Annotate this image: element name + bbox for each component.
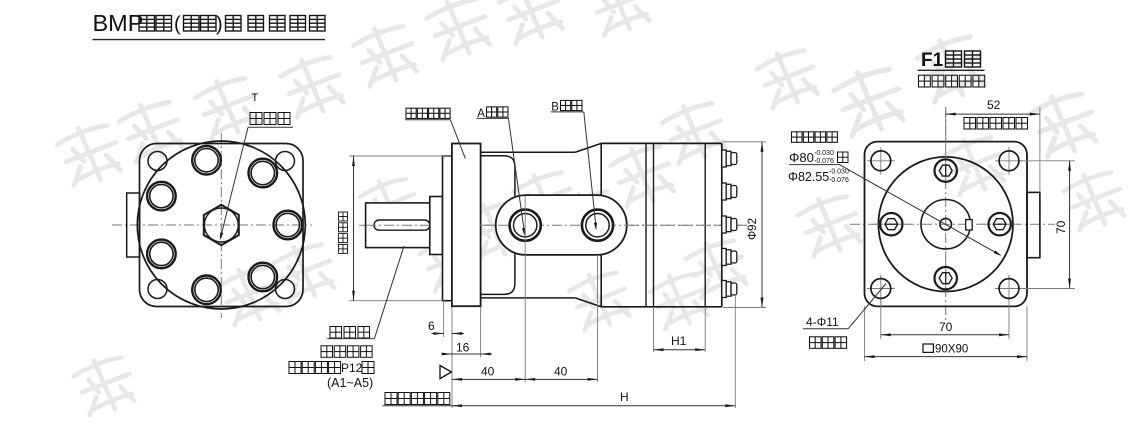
svg-text:H1: H1 <box>671 334 687 348</box>
svg-text:6: 6 <box>428 319 435 333</box>
svg-text:-0.076: -0.076 <box>829 177 849 184</box>
svg-text:4-Φ11: 4-Φ11 <box>806 315 839 329</box>
svg-text:P12: P12 <box>341 361 363 375</box>
svg-text:Φ92: Φ92 <box>747 218 759 240</box>
svg-text:-0.030: -0.030 <box>814 150 834 157</box>
svg-text:40: 40 <box>554 365 568 379</box>
svg-text:T: T <box>252 92 259 104</box>
svg-text:52: 52 <box>987 98 1001 112</box>
svg-text:(A1~A5): (A1~A5) <box>327 376 373 390</box>
svg-text:-0.076: -0.076 <box>814 158 834 165</box>
svg-text:90X90: 90X90 <box>935 343 968 355</box>
svg-text:70: 70 <box>1054 220 1068 234</box>
svg-text:F1: F1 <box>921 50 944 71</box>
svg-text:70: 70 <box>939 320 953 334</box>
svg-text:): ) <box>216 14 223 36</box>
svg-text:40: 40 <box>481 365 495 379</box>
svg-text:Φ82.55: Φ82.55 <box>788 170 829 184</box>
svg-text:BMP: BMP <box>93 10 144 36</box>
svg-text:16: 16 <box>456 341 470 355</box>
svg-text:-0.030: -0.030 <box>829 169 849 176</box>
svg-text:Φ80: Φ80 <box>789 150 814 165</box>
svg-text:H: H <box>620 390 629 404</box>
svg-text:(: ( <box>174 14 181 36</box>
